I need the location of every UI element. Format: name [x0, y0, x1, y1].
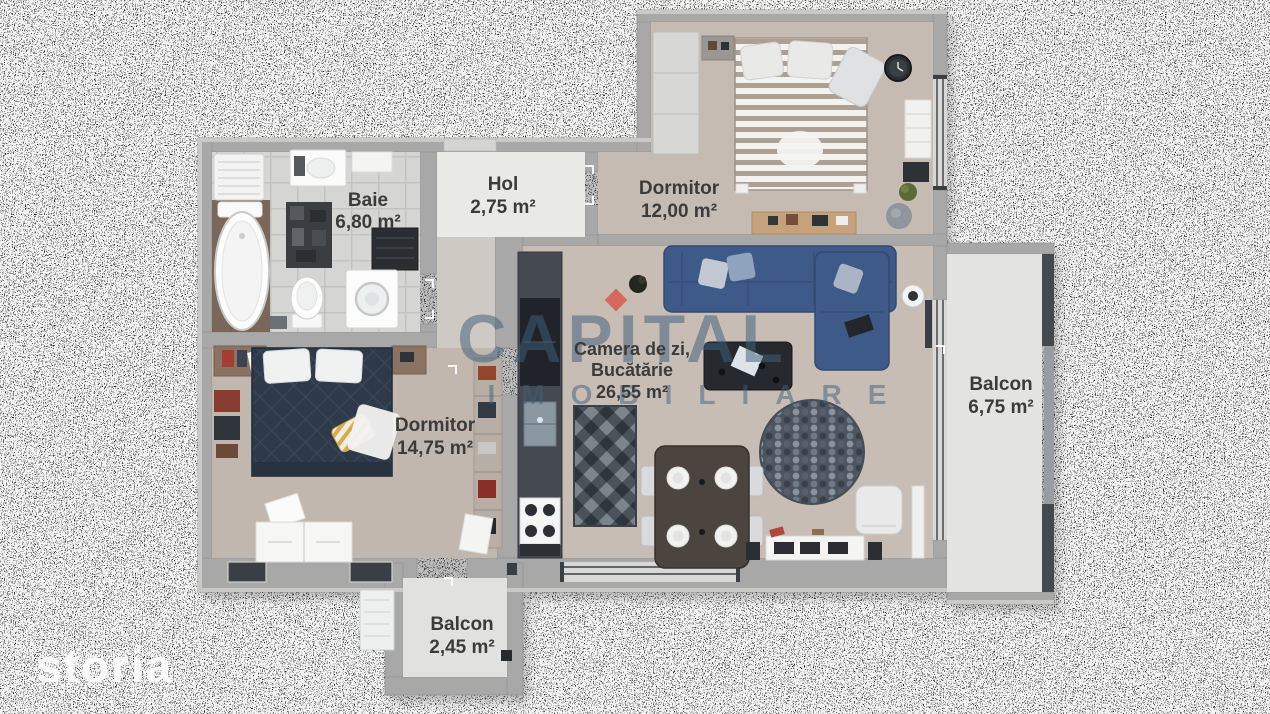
window-dormitor-mare-south-2: [350, 562, 392, 582]
speaker: [868, 542, 882, 560]
bed-navy: [252, 348, 402, 476]
towel-stack: [270, 316, 287, 329]
plant: [899, 183, 917, 201]
speaker: [746, 542, 760, 560]
label-baie-area: 6,80 m²: [335, 212, 400, 233]
room-balcon-mare-floor: [947, 254, 1042, 592]
label-living-area: 26,55 m²: [596, 382, 668, 402]
sofa-pillow: [726, 252, 756, 282]
watermark-tagline: IMOBILIARE: [488, 379, 913, 410]
blanket-fold: [777, 131, 823, 169]
round-rug: [760, 400, 864, 504]
floorplan-canvas: CAPITAL IMOBILIARE Baie 6,80 m² Hol 2,75…: [0, 0, 1270, 714]
label-living-name-1: Camera de zi,: [574, 339, 690, 359]
loose-papers: [459, 514, 493, 554]
label-balcon-mare-area: 6,75 m²: [968, 397, 1033, 418]
dining-table: [655, 446, 749, 568]
label-dormitor-mare-name: Dormitor: [395, 415, 476, 436]
curtain-panel: [912, 486, 924, 558]
exterior-ac-unit: [360, 590, 394, 650]
label-balcon-mic-area: 2,45 m²: [429, 637, 494, 658]
bath-mat: [286, 202, 332, 268]
wardrobe: [653, 32, 699, 154]
dining-set: [641, 446, 763, 568]
window-dormitor-mare-south-1: [228, 562, 266, 582]
window-dormitor-mic-east: [933, 75, 947, 190]
radiator: [214, 154, 264, 200]
pillow: [315, 349, 363, 383]
storia-logo: storia: [36, 640, 173, 692]
label-living-name-2: Bucătărie: [591, 360, 673, 380]
pillow: [787, 41, 833, 80]
label-dormitor-mare-area: 14,75 m²: [397, 438, 473, 459]
label-balcon-mare-name: Balcon: [969, 374, 1032, 395]
bed-striped: [735, 38, 887, 193]
label-hol-area: 2,75 m²: [470, 197, 535, 218]
label-baie-name: Baie: [348, 190, 388, 211]
nightstand: [702, 36, 734, 60]
pillow: [740, 41, 784, 80]
stove: [520, 498, 560, 544]
pillow: [263, 348, 311, 383]
runner-rug: [574, 406, 636, 526]
entry-door: [444, 139, 496, 151]
shelf: [352, 152, 392, 172]
wall-shelf-left: [214, 390, 240, 458]
sofa-pillow: [697, 258, 729, 290]
shelf-stack: [905, 100, 931, 158]
label-balcon-mic-name: Balcon: [430, 614, 493, 635]
label-dormitor-mic-name: Dormitor: [639, 178, 720, 199]
label-hol-name: Hol: [488, 174, 519, 195]
label-dormitor-mic-area: 12,00 m²: [641, 201, 717, 222]
floorplan-image: CAPITAL IMOBILIARE Baie 6,80 m² Hol 2,75…: [0, 0, 1270, 714]
sink-basin: [307, 158, 335, 178]
storage-box: [903, 162, 929, 182]
balcony-door-leaf: [925, 300, 932, 348]
